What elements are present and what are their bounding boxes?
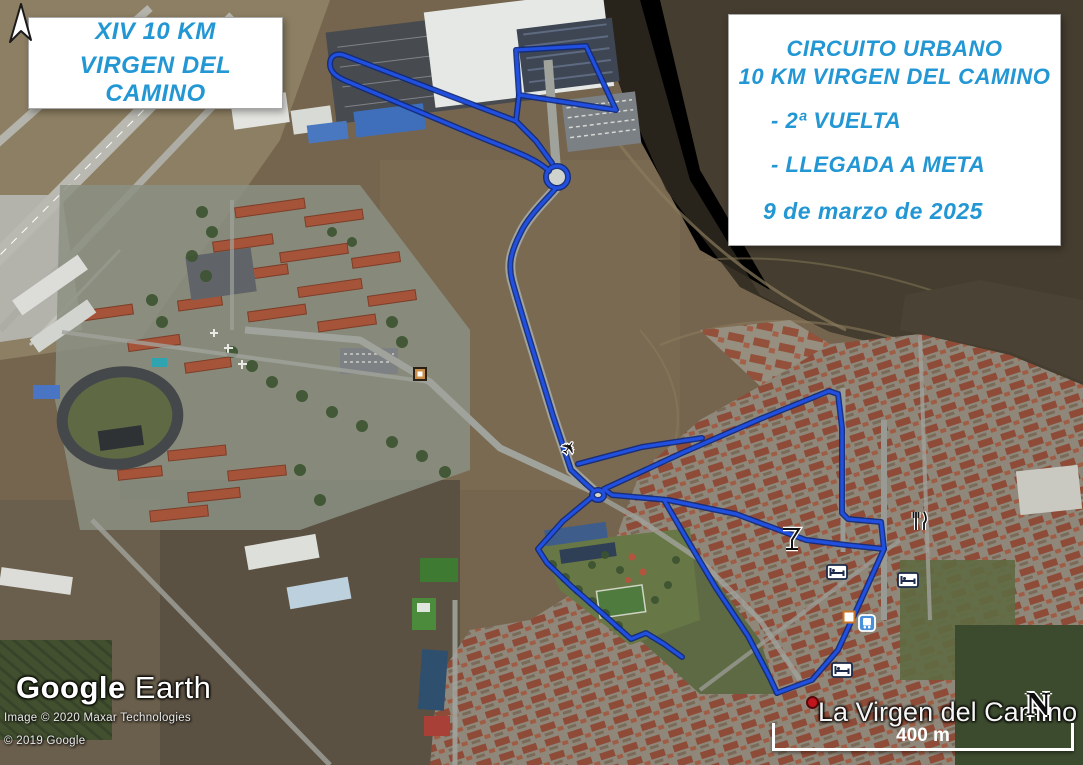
viewpoint-square-icon[interactable] (414, 368, 426, 380)
scale-bar: 400 m (772, 723, 1074, 751)
lodging-icon[interactable] (827, 565, 847, 579)
imagery-credit: Image © 2020 Maxar Technologies (4, 712, 191, 724)
circuit-title-line1: CIRCUITO URBANO (729, 36, 1060, 62)
race-title-panel: XIV 10 KM VIRGEN DEL CAMINO (28, 17, 283, 109)
google-earth-logo-google: Google (16, 670, 126, 705)
circuit-bullet-lap: - 2ª VUELTA (729, 108, 1060, 134)
google-earth-logo-earth: Earth (135, 670, 212, 705)
race-title-line1: XIV 10 KM (29, 18, 282, 46)
transit-icon[interactable] (859, 615, 875, 631)
race-title-line2: VIRGEN DEL CAMINO (29, 52, 282, 108)
photo-square-icon[interactable] (844, 612, 855, 623)
north-letter: N (1026, 686, 1051, 724)
scale-bar-label: 400 m (896, 725, 950, 747)
north-arrow-icon (0, 0, 44, 76)
lodging-icon[interactable] (832, 663, 852, 677)
google-earth-screenshot: ✈ (0, 0, 1083, 765)
circuit-bullet-finish: - LLEGADA A META (729, 152, 1060, 178)
event-date: 9 de marzo de 2025 (729, 198, 1060, 225)
lodging-icon[interactable] (898, 573, 918, 587)
google-earth-logo: GoogleEarth (16, 670, 211, 706)
circuit-info-panel: CIRCUITO URBANO 10 KM VIRGEN DEL CAMINO … (728, 14, 1061, 246)
copyright-credit: © 2019 Google (4, 735, 85, 747)
circuit-title-line2: 10 KM VIRGEN DEL CAMINO (729, 64, 1060, 90)
